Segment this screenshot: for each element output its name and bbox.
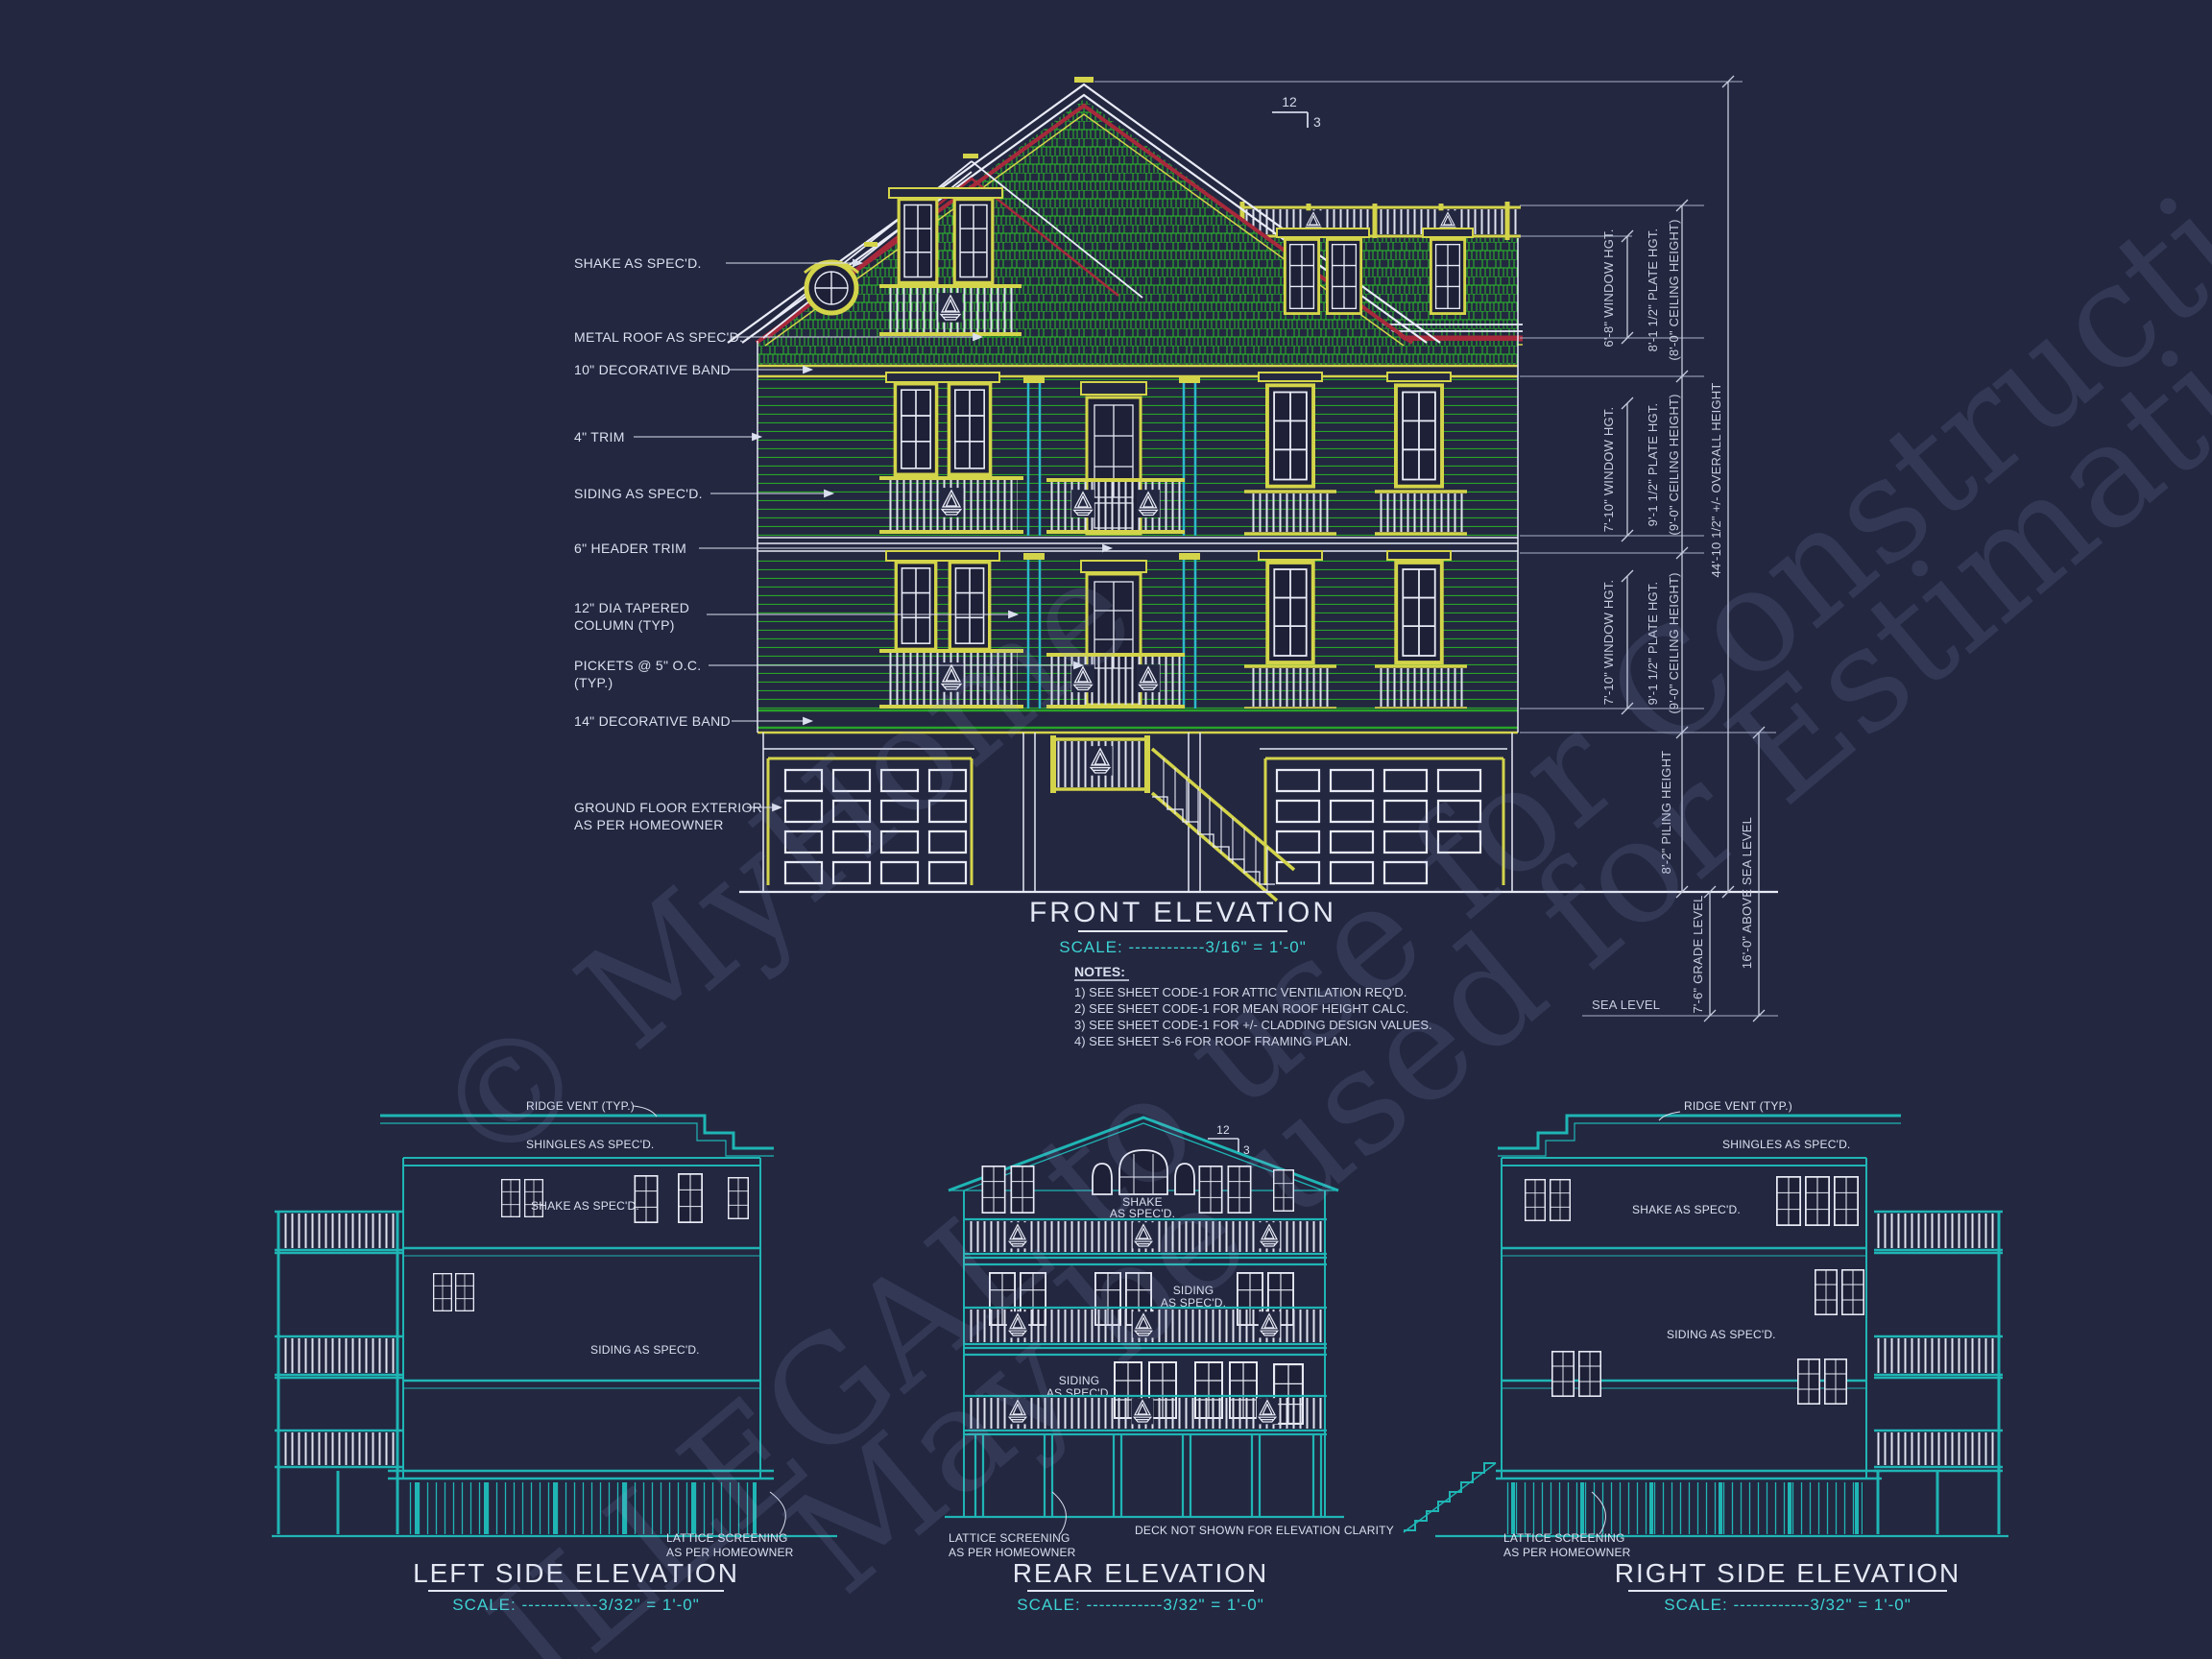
window	[1267, 563, 1313, 662]
callout-column: 12" DIA TAPERED	[574, 600, 689, 615]
porch-balcony-railing	[1050, 482, 1181, 530]
window	[1327, 239, 1360, 313]
front-pitch-marker: 12 3	[1272, 94, 1321, 130]
siding-label-b: SIDING	[1059, 1374, 1100, 1387]
window	[434, 1274, 452, 1311]
window	[1825, 1359, 1846, 1404]
svg-text:AS PER HOMEOWNER: AS PER HOMEOWNER	[574, 817, 724, 832]
right-elevation-scale: SCALE: ------------3/32" = 1'-0"	[1664, 1596, 1911, 1614]
note-3: 3) SEE SHEET CODE-1 FOR +/- CLADDING DES…	[1074, 1018, 1432, 1032]
window-header-trim	[889, 188, 1002, 198]
window	[1579, 1352, 1600, 1396]
arched-window-group	[1093, 1150, 1194, 1194]
lattice-screening	[1503, 1482, 1863, 1534]
window	[954, 200, 993, 283]
window	[1267, 385, 1313, 486]
note-1: 1) SEE SHEET CODE-1 FOR ATTIC VENTILATIO…	[1074, 985, 1407, 999]
lattice-label: LATTICE SCREENING	[1503, 1531, 1625, 1545]
callout-siding: SIDING AS SPEC'D.	[574, 486, 703, 501]
sailboat-railing-motif	[939, 488, 963, 517]
rear-elevation-drawing: SHAKE AS SPEC'D. SIDING AS SPEC'D. SIDIN…	[945, 1118, 1394, 1614]
svg-text:COLUMN (TYP): COLUMN (TYP)	[574, 617, 675, 633]
sailboat-railing-motif	[1071, 664, 1094, 692]
sailboat-railing-motif	[1133, 1222, 1154, 1248]
sailboat-railing-motif	[1137, 664, 1160, 692]
callout-4-trim: 4" TRIM	[574, 429, 625, 445]
left-elevation-scale: SCALE: ------------3/32" = 1'-0"	[452, 1596, 699, 1614]
callout-pickets: PICKETS @ 5" O.C.	[574, 658, 701, 673]
pilings	[975, 1434, 1321, 1517]
siding-label: SIDING AS SPEC'D.	[1667, 1328, 1776, 1341]
dim-overall-height: 44'-10 1/2" +/- OVERALL HEIGHT	[1709, 383, 1723, 578]
rear-elevation-title: REAR ELEVATION	[1013, 1558, 1269, 1588]
front-elevation-scale: SCALE: ------------3/16" = 1'-0"	[1059, 938, 1306, 956]
window	[679, 1174, 702, 1222]
deck-railing	[280, 1432, 397, 1465]
deck-railing	[280, 1338, 397, 1373]
svg-text:AS PER HOMEOWNER: AS PER HOMEOWNER	[1503, 1546, 1631, 1559]
right-side-elevation-drawing: RIDGE VENT (TYP.) SHINGLES AS SPEC'D. SH…	[1404, 1099, 2008, 1614]
left-elevation-title: LEFT SIDE ELEVATION	[413, 1558, 739, 1588]
window	[1806, 1177, 1829, 1225]
sailboat-railing-motif	[1132, 1398, 1153, 1424]
window	[1552, 1352, 1574, 1396]
stair-pickets	[1164, 758, 1267, 893]
window	[1285, 239, 1318, 313]
rear-elevation-scale: SCALE: ------------3/32" = 1'-0"	[1017, 1596, 1263, 1614]
svg-text:3: 3	[1243, 1143, 1250, 1157]
sailboat-railing-motif	[1007, 1311, 1028, 1337]
door-transom	[1081, 382, 1146, 395]
ridge-vent-label: RIDGE VENT (TYP.)	[526, 1099, 635, 1113]
left-side-elevation-drawing: RIDGE VENT (TYP.) SHINGLES AS SPEC'D. SH…	[272, 1099, 837, 1614]
dim-plate-top-2: (8'-0" CEILING HEIGHT)	[1667, 219, 1681, 360]
window	[895, 384, 936, 475]
blueprint-sheet: SHAKE AS SPEC'D. METAL ROOF AS SPEC'D. 1…	[0, 0, 2212, 1659]
shake-label: SHAKE AS SPEC'D.	[1632, 1203, 1741, 1216]
front-title-block: FRONT ELEVATION SCALE: ------------3/16"…	[1029, 897, 1432, 1048]
ridge-cap	[1074, 77, 1094, 83]
svg-text:(TYP.): (TYP.)	[574, 675, 613, 690]
sailboat-railing-motif	[1137, 490, 1160, 517]
window	[1199, 1166, 1221, 1213]
lattice-label: LATTICE SCREENING	[666, 1531, 788, 1545]
window	[1815, 1270, 1837, 1314]
shingles-label: SHINGLES AS SPEC'D.	[526, 1138, 654, 1151]
deck-note-label: DECK NOT SHOWN FOR ELEVATION CLARITY	[1135, 1524, 1394, 1537]
window	[1798, 1359, 1819, 1404]
dim-grade-level: 7'-6" GRADE LEVEL	[1691, 895, 1705, 1013]
window	[729, 1178, 749, 1219]
callout-10-band: 10" DECORATIVE BAND	[574, 362, 731, 377]
ridge-vent-label: RIDGE VENT (TYP.)	[1684, 1099, 1792, 1113]
shingles-label: SHINGLES AS SPEC'D.	[1722, 1138, 1850, 1151]
note-4: 4) SEE SHEET S-6 FOR ROOF FRAMING PLAN.	[1074, 1034, 1352, 1048]
sailboat-railing-motif	[1007, 1222, 1028, 1248]
sailboat-railing-motif	[1259, 1222, 1280, 1248]
garage-door-panels	[1277, 770, 1480, 883]
window	[1396, 563, 1442, 662]
deck-railing	[1876, 1432, 1995, 1465]
dim-plate-mid-1: 9'-1 1/2" PLATE HGT.	[1646, 403, 1660, 527]
window	[950, 563, 989, 650]
window	[982, 1166, 1004, 1213]
dim-piling-height: 8'-2" PILING HEIGHT	[1659, 751, 1673, 875]
dim-window-hgt-mid: 7'-10" WINDOW HGT.	[1601, 407, 1616, 533]
pitch-run: 3	[1313, 114, 1321, 130]
dim-plate-mid-2: (9'-0" CEILING HEIGHT)	[1667, 394, 1681, 535]
dim-plate-top-1: 8'-1 1/2" PLATE HGT.	[1646, 228, 1660, 352]
sailboat-railing-motif	[939, 662, 963, 692]
window	[1551, 1180, 1571, 1221]
window	[1526, 1180, 1546, 1221]
window	[456, 1274, 474, 1311]
note-2: 2) SEE SHEET CODE-1 FOR MEAN ROOF HEIGHT…	[1074, 1001, 1408, 1016]
notes-heading: NOTES:	[1074, 964, 1125, 979]
window	[1228, 1166, 1250, 1213]
window	[1431, 239, 1464, 313]
window	[899, 200, 937, 283]
dim-plate-low-2: (9'-0" CEILING HEIGHT)	[1667, 572, 1681, 713]
pitch-rise: 12	[1282, 94, 1297, 109]
dim-plate-low-1: 9'-1 1/2" PLATE HGT.	[1646, 582, 1660, 706]
sailboat-railing-motif	[1257, 1398, 1278, 1424]
callout-shake: SHAKE AS SPEC'D.	[574, 255, 702, 271]
deck-railing	[1876, 1214, 1995, 1248]
right-elevation-title: RIGHT SIDE ELEVATION	[1615, 1558, 1961, 1588]
callout-14-band: 14" DECORATIVE BAND	[574, 713, 731, 729]
callout-header-trim: 6" HEADER TRIM	[574, 541, 686, 556]
stair-steps	[1152, 797, 1275, 884]
svg-text:AS PER HOMEOWNER: AS PER HOMEOWNER	[666, 1546, 794, 1559]
sailboat-railing-motif	[1133, 1311, 1154, 1337]
sailboat-railing-motif	[1088, 746, 1112, 776]
porch-balcony-railing	[1050, 657, 1181, 705]
lattice-screening	[407, 1482, 757, 1534]
deck-railing	[280, 1214, 397, 1248]
lattice-label: LATTICE SCREENING	[949, 1531, 1070, 1545]
window	[1274, 1170, 1294, 1212]
svg-text:AS SPEC'D.: AS SPEC'D.	[1046, 1386, 1112, 1400]
front-elevation-drawing	[728, 77, 1778, 901]
callout-metal-roof: METAL ROOF AS SPEC'D.	[574, 329, 743, 345]
dim-window-hgt-low: 7'-10" WINDOW HGT.	[1601, 580, 1616, 706]
sailboat-railing-motif	[1259, 1311, 1280, 1337]
sailboat-railing-motif	[1071, 490, 1094, 517]
window	[1011, 1166, 1033, 1213]
front-elevation-title: FRONT ELEVATION	[1029, 897, 1336, 928]
window	[502, 1180, 520, 1217]
sea-level-label: SEA LEVEL	[1592, 998, 1660, 1012]
window	[949, 384, 990, 475]
window	[1396, 385, 1442, 486]
elevation-drawing-canvas: SHAKE AS SPEC'D. METAL ROOF AS SPEC'D. 1…	[0, 0, 2212, 1659]
sailboat-railing-motif	[1007, 1398, 1028, 1424]
siding-label-a: SIDING	[1173, 1284, 1214, 1297]
dim-window-hgt-top: 6'-8" WINDOW HGT.	[1601, 228, 1616, 347]
shake-label: SHAKE AS SPEC'D.	[531, 1199, 639, 1213]
siding-label: SIDING AS SPEC'D.	[590, 1343, 700, 1357]
dim-above-sea-level: 16'-0" ABOVE SEA LEVEL	[1740, 817, 1754, 969]
callout-ground-floor: GROUND FLOOR EXTERIOR	[574, 800, 762, 815]
garage-door-panels	[785, 770, 966, 883]
deck-railing	[1876, 1338, 1995, 1373]
window	[1835, 1177, 1858, 1225]
sailboat-railing-motif	[938, 293, 962, 323]
window	[1842, 1270, 1863, 1314]
svg-text:12: 12	[1216, 1123, 1230, 1137]
window	[1777, 1177, 1800, 1225]
svg-text:AS PER HOMEOWNER: AS PER HOMEOWNER	[949, 1546, 1076, 1559]
window	[896, 563, 935, 650]
